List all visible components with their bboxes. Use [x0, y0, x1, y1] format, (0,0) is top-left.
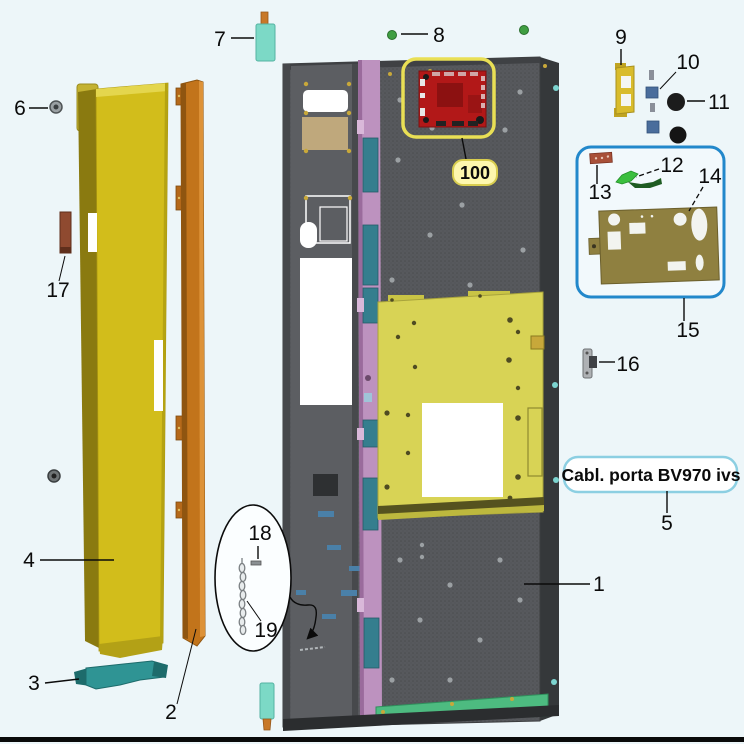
part-18-pin — [251, 561, 261, 565]
part-9-yellow-bracket — [614, 63, 634, 117]
part-14-mounting-plate — [588, 207, 719, 284]
part-13-brown-connector — [590, 152, 613, 164]
part-label-8: 8 — [433, 24, 445, 47]
part-label-2: 2 — [165, 701, 177, 724]
part-label-6: 6 — [14, 97, 26, 120]
part-19-chain — [239, 558, 246, 635]
door-tan-opening — [302, 117, 348, 150]
part-label-1: 1 — [593, 573, 605, 596]
part-label-3: 3 — [28, 672, 40, 695]
part-label-19: 19 — [254, 619, 277, 642]
part-label-10: 10 — [676, 51, 699, 74]
part-label-15: 15 — [676, 319, 699, 342]
part-4-outer-door-panel — [77, 83, 168, 658]
exploded-parts-diagram: 100 — [0, 0, 744, 744]
part-label-16: 16 — [616, 353, 639, 376]
part-label-14: 14 — [698, 165, 722, 188]
part-label-13: 13 — [588, 181, 611, 204]
part-label-12: 12 — [660, 154, 683, 177]
part-17-brown-clip — [60, 212, 71, 253]
yellow-plate — [378, 291, 544, 520]
part-5-product-callout: Cabl. porta BV970 ivs — [562, 457, 741, 492]
part-label-11: 11 — [708, 91, 730, 114]
part-6-screw-top — [50, 101, 62, 113]
part-label-100: 100 — [460, 163, 490, 183]
part-label-17: 17 — [46, 279, 69, 302]
part-label-5: 5 — [661, 512, 673, 535]
diagram-canvas: 100 — [0, 0, 744, 744]
door-tall-cutout — [300, 258, 352, 405]
part-label-9: 9 — [615, 26, 627, 49]
part-label-7: 7 — [214, 28, 226, 51]
part-label-4: 4 — [23, 549, 35, 572]
part-1-inner-door-panel — [283, 57, 559, 731]
product-callout-text: Cabl. porta BV970 ivs — [562, 465, 741, 485]
screw-lower — [48, 470, 60, 482]
door-cutout-top — [303, 90, 348, 112]
part-label-18: 18 — [248, 522, 271, 545]
bottom-rule — [0, 737, 744, 742]
